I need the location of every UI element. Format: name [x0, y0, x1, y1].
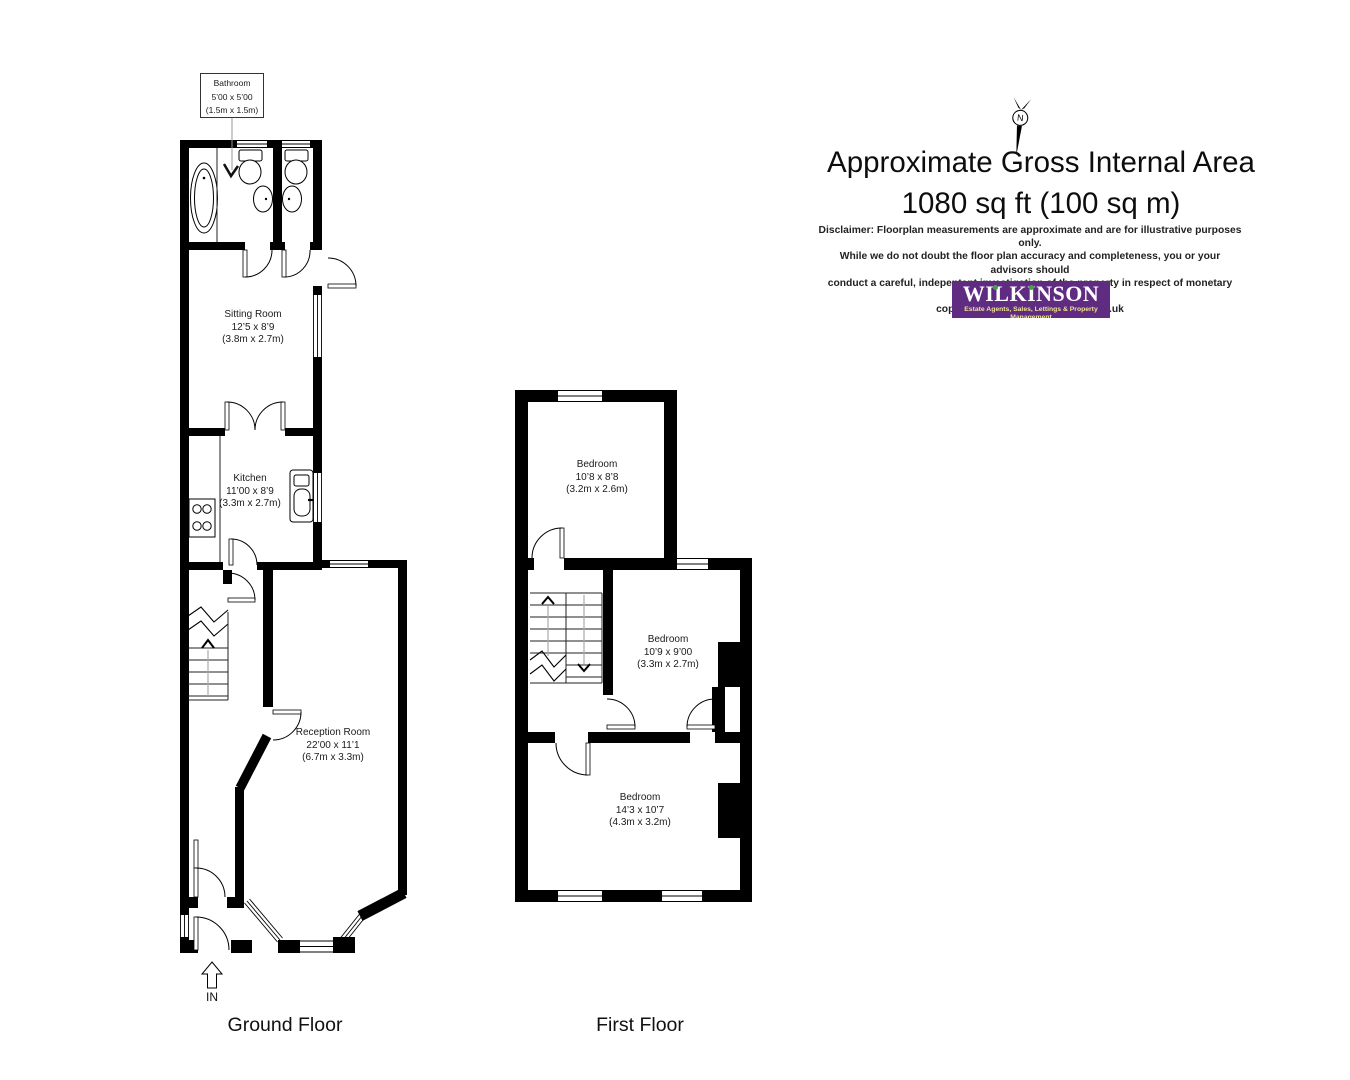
- kitchen-label: Kitchen 11’00 x 8’9 (3.3m x 2.7m): [180, 473, 320, 511]
- room-name: Bathroom: [201, 77, 263, 91]
- bedroom-1-label: Bedroom 10’8 x 8’8 (3.2m x 2.6m): [527, 459, 667, 497]
- compass-n-label: N: [1017, 113, 1025, 124]
- agency-logo: WILKINSON Estate Agents, Sales, Lettings…: [952, 281, 1110, 318]
- room-size-ft: 12’5 x 8’9: [183, 322, 323, 335]
- entrance-arrow-icon: [202, 962, 222, 988]
- page-title: Approximate Gross Internal Area: [815, 142, 1267, 183]
- first-floor-label: First Floor: [555, 1014, 725, 1037]
- room-name: Reception Room: [263, 727, 403, 740]
- agency-logo-tagline: Estate Agents, Sales, Lettings & Propert…: [952, 306, 1110, 318]
- floorplan-document: N Bathroom 5’00 x 5’00 (1.5m x 1.5m) Sit…: [0, 0, 1350, 1080]
- room-size-m: (3.2m x 2.6m): [527, 484, 667, 497]
- window: [181, 141, 369, 953]
- disclaimer-line: Disclaimer: Floorplan measurements are a…: [818, 224, 1242, 250]
- staircase: [188, 607, 228, 700]
- room-name: Kitchen: [180, 473, 320, 486]
- room-name: Bedroom: [527, 459, 667, 472]
- logo-i-dot: [1029, 285, 1034, 290]
- entrance-label: IN: [198, 990, 226, 1004]
- room-size-m: (1.5m x 1.5m): [201, 104, 263, 118]
- room-size-m: (3.3m x 2.7m): [598, 659, 738, 672]
- bathroom-callout: Bathroom 5’00 x 5’00 (1.5m x 1.5m): [200, 73, 264, 118]
- bedroom-3-label: Bedroom 14’3 x 10’7 (4.3m x 3.2m): [570, 792, 710, 830]
- door: [194, 250, 356, 950]
- room-name: Bedroom: [598, 634, 738, 647]
- reception-room-label: Reception Room 22’00 x 11’1 (6.7m x 3.3m…: [263, 727, 403, 765]
- room-name: Sitting Room: [183, 309, 323, 322]
- room-size-ft: 10’8 x 8’8: [527, 472, 667, 485]
- staircase: [530, 593, 602, 683]
- bedroom-2-label: Bedroom 10’9 x 9’00 (3.3m x 2.7m): [598, 634, 738, 672]
- room-size-ft: 14’3 x 10’7: [570, 805, 710, 818]
- page-title-area: 1080 sq ft (100 sq m): [815, 183, 1267, 224]
- ground-floor-plan: [180, 140, 407, 953]
- disclaimer-line: While we do not doubt the floor plan acc…: [818, 250, 1242, 276]
- room-size-m: (4.3m x 3.2m): [570, 817, 710, 830]
- bathtub-icon: [191, 148, 218, 242]
- room-size-m: (3.8m x 2.7m): [183, 334, 323, 347]
- room-size-ft: 22’00 x 11’1: [263, 740, 403, 753]
- sitting-room-label: Sitting Room 12’5 x 8’9 (3.8m x 2.7m): [183, 309, 323, 347]
- room-name: Bedroom: [570, 792, 710, 805]
- title-block: Approximate Gross Internal Area 1080 sq …: [815, 142, 1267, 224]
- room-size-ft: 11’00 x 8’9: [180, 486, 320, 499]
- ground-floor-label: Ground Floor: [200, 1014, 370, 1037]
- room-size-ft: 10’9 x 9’00: [598, 647, 738, 660]
- room-size-m: (6.7m x 3.3m): [263, 752, 403, 765]
- room-size-m: (3.3m x 2.7m): [180, 498, 320, 511]
- logo-i-dot: [993, 285, 998, 290]
- room-size-ft: 5’00 x 5’00: [201, 91, 263, 105]
